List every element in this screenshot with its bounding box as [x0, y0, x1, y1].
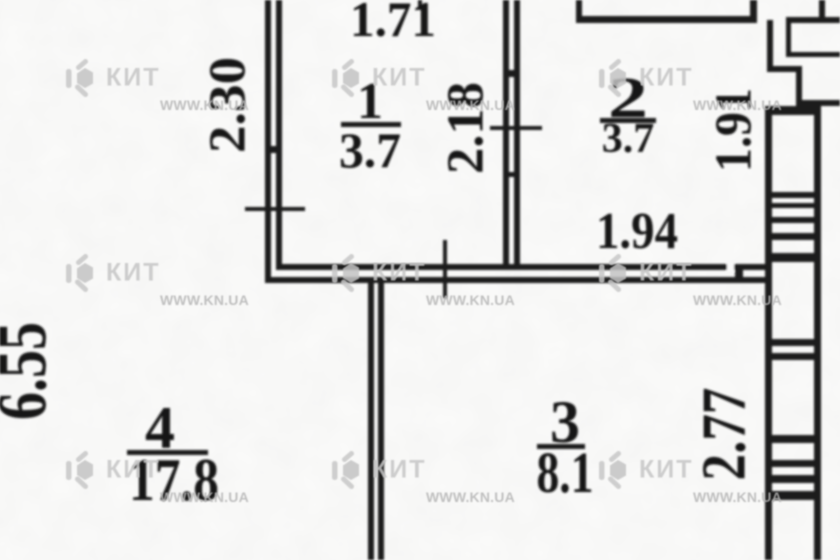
- svg-text:2.77: 2.77: [691, 388, 759, 481]
- svg-text:КИТ: КИТ: [106, 456, 161, 484]
- svg-text:КИТ: КИТ: [106, 259, 161, 287]
- svg-text:WWW.KN.UA: WWW.KN.UA: [160, 292, 249, 308]
- svg-text:2.18: 2.18: [438, 82, 495, 174]
- svg-text:WWW.KN.UA: WWW.KN.UA: [160, 489, 249, 505]
- svg-text:КИТ: КИТ: [372, 456, 427, 484]
- svg-text:КИТ: КИТ: [372, 259, 427, 287]
- svg-text:3.7: 3.7: [602, 116, 655, 162]
- svg-text:WWW.KN.UA: WWW.KN.UA: [426, 97, 515, 113]
- svg-text:WWW.KN.UA: WWW.KN.UA: [693, 292, 782, 308]
- svg-text:1.94: 1.94: [596, 203, 678, 260]
- svg-text:3.7: 3.7: [339, 122, 401, 178]
- svg-text:1.71: 1.71: [350, 0, 436, 47]
- svg-text:WWW.KN.UA: WWW.KN.UA: [693, 97, 782, 113]
- svg-text:КИТ: КИТ: [639, 259, 694, 287]
- svg-text:КИТ: КИТ: [372, 64, 427, 92]
- svg-text:8.1: 8.1: [537, 440, 594, 505]
- svg-text:КИТ: КИТ: [639, 456, 694, 484]
- svg-text:WWW.KN.UA: WWW.KN.UA: [426, 489, 515, 505]
- svg-text:КИТ: КИТ: [106, 64, 161, 92]
- svg-text:WWW.KN.UA: WWW.KN.UA: [160, 97, 249, 113]
- svg-text:КИТ: КИТ: [639, 64, 694, 92]
- svg-text:6.55: 6.55: [0, 322, 62, 420]
- svg-text:WWW.KN.UA: WWW.KN.UA: [693, 489, 782, 505]
- svg-text:WWW.KN.UA: WWW.KN.UA: [426, 292, 515, 308]
